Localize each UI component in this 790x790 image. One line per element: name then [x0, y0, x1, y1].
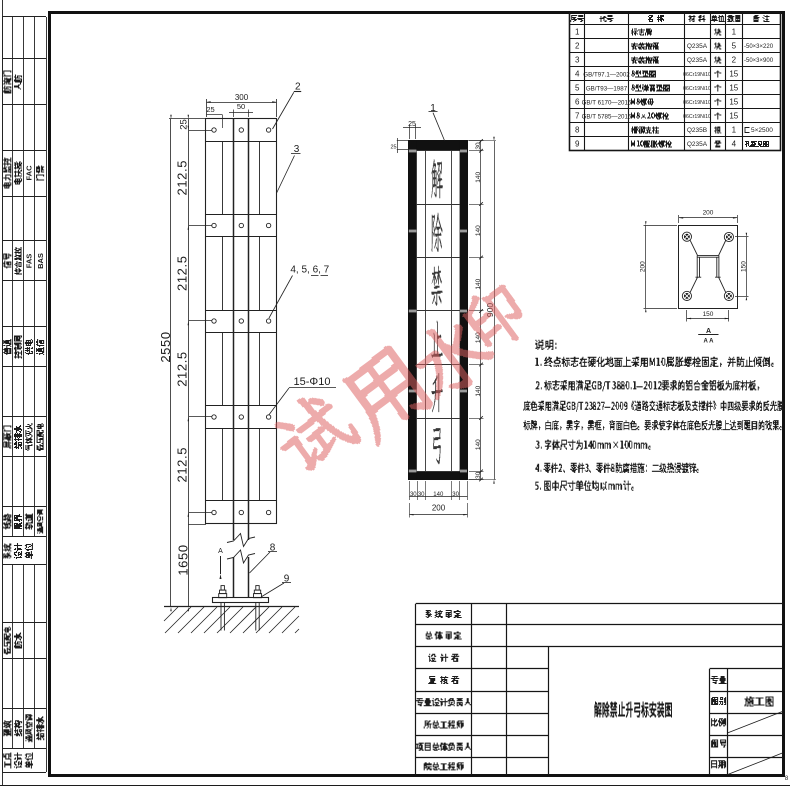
svg-text:30: 30	[475, 471, 482, 479]
svg-text:Q235B: Q235B	[687, 127, 707, 134]
svg-text:150: 150	[703, 311, 714, 318]
svg-text:15: 15	[729, 112, 738, 121]
svg-text:3: 3	[575, 56, 580, 65]
svg-text:15: 15	[729, 70, 738, 79]
svg-text:2: 2	[295, 82, 301, 93]
svg-text:Q235A: Q235A	[687, 57, 708, 64]
svg-text:30: 30	[418, 492, 425, 498]
svg-text:140: 140	[433, 492, 444, 498]
svg-text:140: 140	[475, 278, 482, 289]
svg-text:Q235A: Q235A	[687, 43, 708, 50]
svg-text:06Cr19Ni10: 06Cr19Ni10	[683, 86, 711, 92]
svg-text:BAS: BAS	[36, 253, 45, 269]
svg-text:140: 140	[475, 385, 482, 396]
svg-text:FAS: FAS	[25, 254, 34, 269]
svg-text:25: 25	[408, 121, 416, 128]
svg-text:150: 150	[740, 261, 747, 272]
svg-text:7: 7	[575, 112, 580, 121]
svg-text:212.5: 212.5	[174, 160, 189, 196]
svg-text:A: A	[706, 328, 711, 335]
svg-text:4, 5, 6, 7: 4, 5, 6, 7	[290, 265, 329, 276]
svg-text:1: 1	[732, 126, 737, 135]
svg-text:06Cr19Ni10: 06Cr19Ni10	[683, 100, 711, 106]
svg-text:A A: A A	[704, 339, 715, 345]
svg-text:1: 1	[430, 103, 436, 114]
svg-text:FAC: FAC	[25, 165, 34, 181]
svg-text:30: 30	[475, 142, 482, 150]
svg-text:5: 5	[732, 42, 737, 51]
svg-text:212.5: 212.5	[174, 351, 189, 387]
svg-text:6: 6	[575, 98, 580, 107]
svg-text:GB/T 5785—2016: GB/T 5785—2016	[582, 113, 632, 120]
svg-text:A: A	[218, 548, 223, 555]
svg-text:15: 15	[729, 84, 738, 93]
svg-text:212.5: 212.5	[174, 255, 189, 291]
svg-text:1650: 1650	[175, 544, 190, 575]
svg-text:140: 140	[475, 171, 482, 182]
svg-text:140: 140	[475, 225, 482, 236]
svg-text:Q235A: Q235A	[687, 141, 708, 148]
svg-text:GB/T93—1987: GB/T93—1987	[586, 85, 628, 92]
svg-text:200: 200	[703, 210, 714, 217]
svg-text:8: 8	[575, 126, 580, 135]
svg-text:25: 25	[178, 119, 189, 130]
svg-text:4: 4	[732, 140, 737, 149]
svg-text:2: 2	[575, 42, 580, 51]
svg-text:15: 15	[729, 98, 738, 107]
svg-text:300: 300	[235, 93, 249, 102]
svg-text:212.5: 212.5	[174, 447, 189, 483]
svg-text:5×2500: 5×2500	[751, 127, 773, 134]
svg-text:4: 4	[575, 70, 580, 79]
svg-text:06Cr19Ni10: 06Cr19Ni10	[683, 72, 711, 78]
svg-text:1: 1	[732, 28, 737, 37]
svg-text:2: 2	[732, 56, 737, 65]
svg-text:GB/T 6170—2015: GB/T 6170—2015	[582, 99, 632, 106]
svg-text:1: 1	[575, 28, 580, 37]
svg-text:200: 200	[432, 504, 446, 513]
svg-text:25: 25	[206, 105, 214, 114]
svg-text:30: 30	[452, 492, 459, 498]
svg-text:50: 50	[237, 102, 245, 111]
svg-text:2550: 2550	[158, 331, 173, 362]
svg-text:9: 9	[575, 140, 580, 149]
svg-text:GB/T97.1—2002: GB/T97.1—2002	[583, 71, 630, 78]
svg-text:140: 140	[475, 439, 482, 450]
svg-text:25: 25	[390, 145, 396, 151]
svg-text:200: 200	[640, 261, 647, 272]
svg-text:06Cr19Ni10: 06Cr19Ni10	[683, 114, 711, 120]
svg-text:15-Φ10: 15-Φ10	[294, 376, 331, 388]
svg-text:-50×3×220: -50×3×220	[744, 44, 774, 50]
svg-text:-50×3×900: -50×3×900	[744, 58, 774, 64]
svg-text:5: 5	[575, 84, 580, 93]
svg-text:30: 30	[410, 492, 417, 498]
